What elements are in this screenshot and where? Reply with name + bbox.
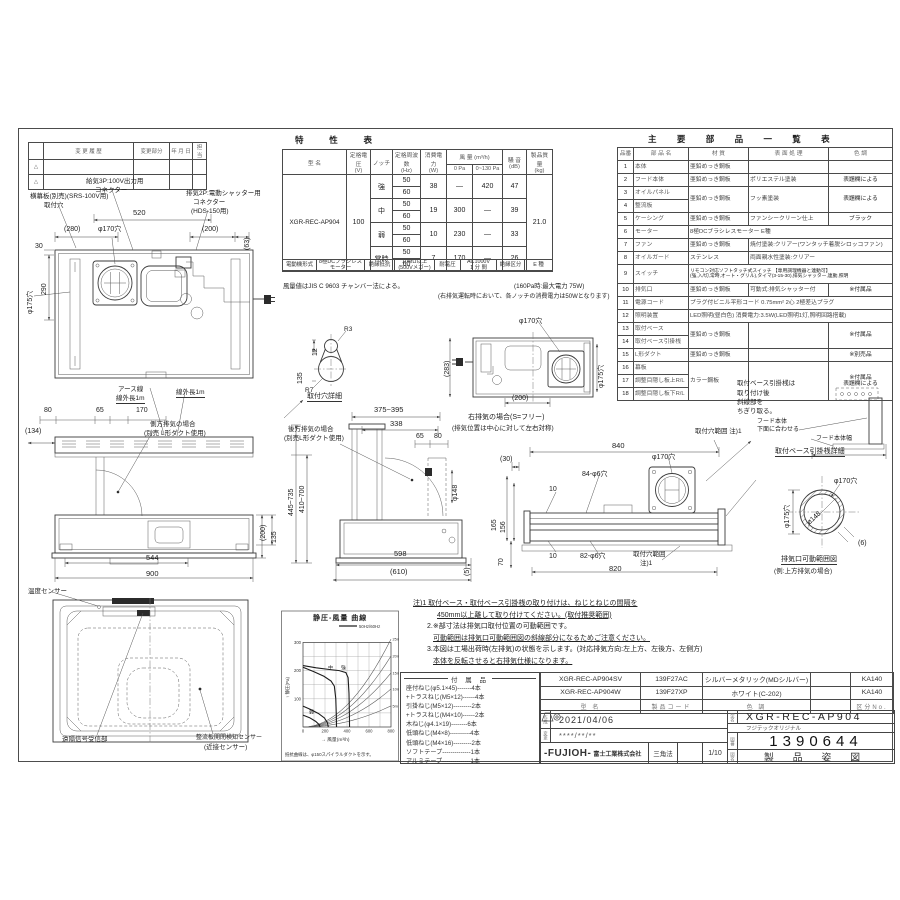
dim-label: 10: [549, 553, 557, 561]
svg-text:25m: 25m: [393, 637, 400, 642]
accessory-item: ソフトテープ--------------1本: [401, 748, 539, 757]
svg-text:300: 300: [294, 640, 302, 645]
accessory-item: 低頭ねじ(M4×16)---------2本: [401, 739, 539, 748]
table-cell: [749, 349, 829, 362]
accessory-item: 引掛ねじ(M5×12)---------2本: [401, 702, 539, 711]
dim-label: 取付ベース引掛桟は: [737, 380, 795, 387]
dim-label: 840: [612, 442, 625, 450]
table-cell: 調整目隠し板下R/L: [634, 388, 689, 401]
table-cell: リモコン対応ソフトタッチ式スイッチ 【専用調理機器と連動可】 (強,入/切,常時…: [689, 265, 893, 284]
table-cell: オイルパネル: [634, 187, 689, 200]
dim-label: アース線: [118, 386, 143, 393]
accessory-item: 木ねじ(φ4.1×19)--------6本: [401, 720, 539, 729]
table-cell: 取付ベース: [634, 323, 689, 336]
table-cell: モーター: [634, 226, 689, 239]
dim-label: (160Pa時:最大電力 75W): [514, 283, 584, 290]
third-angle-projection-icon: [677, 743, 702, 763]
table-cell: 15: [618, 349, 634, 362]
dim-label: φ175穴: [27, 291, 35, 314]
table-cell: [29, 143, 44, 160]
keyhole-detail-drawing: [284, 331, 348, 418]
table-cell: 本体: [634, 161, 689, 174]
dim-label: (200): [260, 525, 268, 541]
dim-label: 135: [271, 531, 279, 543]
note-line: 3.本図は工場出荷時(左排気)の状態を示します。(対応排気方向:左上方、左後方、…: [427, 644, 702, 656]
dim-label: φ148: [452, 485, 460, 501]
table-cell: 4: [618, 200, 634, 213]
model-name: XGR-REC-AP904: [738, 711, 894, 723]
table-cell: 1: [618, 161, 634, 174]
table-cell: 強: [371, 175, 393, 199]
table-cell: △: [29, 160, 44, 175]
top-view-drawing: [34, 190, 275, 378]
sheet-name-label: 図名: [728, 750, 738, 763]
table-cell: 2: [618, 174, 634, 187]
table-cell: 定格周波数 (Hz): [393, 150, 421, 175]
chart-ylabel: ↑ 静圧(Pa): [284, 676, 291, 698]
table-cell: 39: [503, 199, 527, 223]
dim-label: 544: [146, 554, 159, 562]
table-cell: ホワイト(C-202): [703, 686, 811, 700]
table-cell: 絶縁抵抗: [365, 260, 395, 272]
table-cell: [811, 673, 851, 687]
table-cell: 10MΩ以上 (500Vメガー): [395, 260, 435, 272]
dim-label: 取付穴詳細: [307, 393, 342, 402]
table-cell: —: [447, 175, 473, 199]
dim-label: 線外長1m: [176, 389, 205, 398]
table-cell: [811, 686, 851, 700]
dim-label: 注)1: [640, 560, 652, 567]
table-cell: 取付ベース引掛桟: [634, 336, 689, 349]
table-cell: 300: [447, 199, 473, 223]
table-cell: XGR-REC-AP904: [283, 175, 347, 271]
chart-title: 静圧-風量 曲線: [313, 613, 367, 622]
table-cell: シルバーメタリック(MDシルバー): [703, 673, 811, 687]
table-cell: 表題欄による: [829, 187, 893, 213]
table-cell: ノッチ: [371, 150, 393, 175]
table-cell: 亜鉛めっき鋼板: [689, 323, 749, 349]
mounting-base-drawing: [507, 440, 756, 576]
table-cell: 製品質量 (kg): [527, 150, 553, 175]
dim-label: (別売 L形ダクト使用): [144, 430, 206, 437]
table-cell: 幕板: [634, 362, 689, 375]
table-cell: 38: [421, 175, 447, 199]
dim-label: (5): [464, 567, 472, 576]
table-cell: 表 面 処 理: [749, 148, 829, 161]
drawing-number: 1390644: [738, 733, 894, 749]
dim-label: 取付穴: [44, 202, 64, 209]
dim-label: (134): [25, 428, 41, 436]
temp-sensor-note: 温度センサー: [28, 588, 67, 595]
proximity-sensor-note: 整流板開閉検知センサー: [196, 735, 262, 742]
table-cell: 139F27AC: [641, 673, 703, 687]
table-cell: 11: [618, 297, 634, 310]
table-cell: 電動機形式: [283, 260, 317, 272]
table-cell: 騒 音 (dB): [503, 150, 527, 175]
table-cell: 17: [618, 375, 634, 388]
table-cell: 139F27XP: [641, 686, 703, 700]
table-cell: 16: [618, 362, 634, 375]
table-cell: 230: [447, 223, 473, 247]
dim-label: 165: [491, 519, 499, 531]
table-cell: 3: [618, 187, 634, 200]
table-cell: 耐電圧: [435, 260, 461, 272]
note-line: 注)1 取付ベース・取付ベース引掛桟の取り付けは、ねじとねじの間隔を: [413, 598, 637, 610]
dim-label: 12: [312, 348, 320, 356]
table-cell: 中: [371, 199, 393, 223]
dim-label: 900: [146, 570, 159, 578]
table-cell: 33: [503, 223, 527, 247]
dim-label: (例:上方排気の場合): [774, 568, 832, 575]
dim-label: (HDS-150用): [191, 208, 229, 215]
drawing-scale: 1/10: [702, 743, 727, 763]
table-cell: プラグ付ビニル平形コード 0.75mm² 2心 2極差込プラグ: [689, 297, 893, 310]
table-cell: 型 名: [283, 150, 347, 175]
table-cell: XGR-REC-AP904SV: [541, 673, 641, 687]
table-cell: [134, 160, 170, 175]
dim-label: R3: [344, 326, 352, 333]
table-cell: KA140: [851, 686, 894, 700]
accessories-box: 付 属 品 座付ねじ(φ5.1×45)-------4本+トラスねじ(M5×12…: [400, 672, 540, 764]
right-exhaust-top-view-drawing: [450, 320, 597, 407]
table-cell: 10: [421, 223, 447, 247]
dim-label: (別売L形ダクト使用): [284, 435, 344, 442]
table-cell: 10: [618, 284, 634, 297]
table-cell: 部 品 名: [634, 148, 689, 161]
pressure-airflow-chart: 静圧-風量 曲線50Hz/60Hz10020030002004006008005…: [281, 610, 399, 765]
notes-block: 注)1 取付ベース・取付ベース引掛桟の取り付けは、ねじとねじの間隔を450mm以…: [413, 598, 893, 668]
table-cell: スイッチ: [634, 265, 689, 284]
accessories-title: 付 属 品: [401, 673, 539, 684]
dim-label: 135: [297, 372, 305, 384]
table-cell: 亜鉛めっき鋼板: [689, 349, 749, 362]
created-date: 2021/04/06: [551, 711, 727, 728]
table-cell: △: [29, 175, 44, 190]
parts-table: 品番部 品 名材 質表 面 処 理色 調1本体亜鉛めっき鋼板2フード本体亜鉛めっ…: [617, 147, 893, 401]
table-cell: 50: [393, 247, 421, 259]
table-cell: 21.0: [527, 175, 553, 271]
dim-label: 後方排気の場合: [288, 426, 334, 433]
table-cell: 13: [618, 323, 634, 336]
table-cell: 亜鉛めっき鋼板: [689, 239, 749, 252]
dim-label: コネクター: [193, 199, 225, 206]
dim-label: (排気位置は中心に対して左右対称): [452, 425, 554, 432]
dim-label: φ175穴: [784, 505, 792, 528]
note-line: 450mm以上離して取り付けてください。(取付推奨範囲): [437, 610, 612, 622]
table-cell: AC1000V 1 分 間: [461, 260, 497, 272]
dim-label: 排気口可動範囲図: [781, 556, 837, 565]
table-cell: —: [473, 223, 503, 247]
dim-label: φ170穴: [519, 318, 542, 326]
dim-label: 30: [35, 243, 43, 251]
table-cell: [193, 175, 207, 190]
projection-method: 三角法: [648, 743, 677, 763]
spec-table-title: 特 性 表: [295, 134, 379, 146]
chart-note: 抵抗曲線は、φ150スパイラルダクトを示す。: [285, 751, 374, 758]
dim-label: (200): [512, 395, 528, 403]
table-cell: 可動式:排気シャッター付: [749, 284, 829, 297]
exhaust-range-diagram: [786, 476, 860, 548]
table-cell: 14: [618, 336, 634, 349]
svg-text:200: 200: [294, 668, 302, 673]
dim-label: 375~395: [374, 406, 403, 414]
svg-text:100: 100: [294, 696, 302, 701]
table-cell: —: [473, 199, 503, 223]
table-cell: [749, 323, 829, 349]
note-line: 本体を反転させると右排気仕様になります。: [433, 656, 572, 668]
table-cell: XGR-REC-AP904W: [541, 686, 641, 700]
dim-label: (283): [444, 361, 452, 377]
dim-label: 65: [96, 407, 104, 415]
drawing-number-label: 図番: [728, 733, 738, 749]
dim-label: 下面に合わせる: [757, 427, 799, 434]
dim-label: (6): [858, 540, 867, 548]
chart-xlabel: → 風量(m³/h): [321, 736, 350, 743]
table-cell: 60: [393, 187, 421, 199]
table-cell: 18: [618, 388, 634, 401]
table-cell: 6: [618, 226, 634, 239]
dim-label: 70: [498, 558, 506, 566]
table-cell: [829, 161, 893, 174]
spec-table: 型 名定格電圧 (V)ノッチ定格周波数 (Hz)消費電力 (W)風 量 (m³/…: [282, 149, 553, 271]
dim-label: 80: [44, 407, 52, 415]
table-cell: 亜鉛めっき鋼板: [689, 284, 749, 297]
table-cell: 5: [618, 213, 634, 226]
table-cell: 0~130 Pa: [473, 164, 503, 174]
dim-label: (63): [244, 238, 252, 250]
table-cell: 亜鉛めっき鋼板: [689, 161, 749, 174]
table-cell: 50: [393, 199, 421, 211]
table-cell: ファン: [634, 239, 689, 252]
table-cell: ※付属品: [829, 284, 893, 297]
table-cell: 7: [618, 239, 634, 252]
dim-label: 445~735: [288, 489, 296, 516]
accessory-item: 座付ねじ(φ5.1×45)-------4本: [401, 684, 539, 693]
table-cell: 色 調: [829, 148, 893, 161]
table-cell: ※付属品: [829, 323, 893, 349]
table-cell: 両面親水性塗装:クリアー: [749, 252, 893, 265]
svg-text:600: 600: [366, 729, 374, 734]
chart-legend: 50Hz/60Hz: [359, 624, 380, 629]
dim-label: (30): [500, 456, 512, 464]
table-cell: ポリエステル塗装: [749, 174, 829, 187]
table-cell: 亜鉛めっき鋼板: [689, 187, 749, 213]
exhaust-connector-note: 排気2P:電動シャッター用: [186, 190, 261, 197]
accessory-item: アルミテープ--------------1本: [401, 757, 539, 766]
svg-text:0: 0: [302, 729, 305, 734]
motor-spec-table: 電動機形式8極DCブラシレス モーター絶縁抵抗10MΩ以上 (500Vメガー)耐…: [282, 259, 553, 272]
dim-label: 取付穴範囲: [633, 551, 666, 558]
table-cell: 弱: [371, 223, 393, 247]
dim-label: 右排気の場合(S=フリー): [468, 414, 544, 422]
dim-label: 156: [500, 521, 508, 533]
svg-text:800: 800: [388, 729, 396, 734]
dim-label: (200): [202, 226, 218, 234]
note-line: 可動範囲は排気口可動範囲図の斜線部分になるためご注意ください。: [433, 633, 650, 645]
table-cell: 風 量 (m³/h): [447, 150, 503, 165]
dim-label: (610): [390, 568, 408, 576]
dim-label: 65: [416, 433, 424, 441]
table-cell: L形ダクト: [634, 349, 689, 362]
table-cell: 60: [393, 235, 421, 247]
table-cell: 60: [393, 211, 421, 223]
svg-text:200: 200: [322, 729, 330, 734]
table-cell: 焼付塗装:クリアー(ワンタッチ着脱シロッコファン): [749, 239, 893, 252]
table-cell: 亜鉛めっき鋼板: [689, 174, 749, 187]
accessories-list: 座付ねじ(φ5.1×45)-------4本+トラスねじ(M5×12)-----…: [401, 684, 539, 766]
title-block-left: 作成 2021/04/06 変更 ****/**/** -FUJIOH- 富士工…: [541, 711, 728, 763]
table-cell: LED照明(昼白色) 消費電力:3.5W(LED照明1灯,照明回路搭載): [689, 310, 893, 323]
parts-table-title: 主 要 部 品 一 覧 表: [648, 133, 839, 145]
table-cell: 表題欄による: [829, 174, 893, 187]
svg-text:強: 強: [341, 664, 346, 671]
table-cell: KA140: [851, 673, 894, 687]
dim-label: 820: [609, 565, 622, 573]
table-cell: 50: [393, 223, 421, 235]
model-label: 型名: [728, 711, 738, 723]
bottom-view-drawing: [52, 592, 248, 744]
company-name: 富士工業株式会社: [593, 749, 641, 758]
table-cell: オイルガード: [634, 252, 689, 265]
accessory-item: 低頭ねじ(M4×8)----------4本: [401, 729, 539, 738]
title-block-right: 型名 XGR-REC-AP904 フジテックオリジナル 図番 1390644 図…: [728, 711, 894, 763]
accessories-title-text: 付 属 品: [451, 674, 489, 684]
table-cell: 47: [503, 175, 527, 199]
table-cell: 排気口: [634, 284, 689, 297]
table-cell: フッ素塗装: [749, 187, 829, 213]
dim-label: 80: [434, 433, 442, 441]
changed-date: ****/**/**: [551, 729, 727, 742]
table-cell: 材 質: [689, 148, 749, 161]
table-cell: 定格電圧 (V): [347, 150, 371, 175]
table-cell: 420: [473, 175, 503, 199]
table-cell: ステンレス: [689, 252, 749, 265]
dim-label: (右排気運転時において、各ノッチの消費電力は50Wとなります): [438, 294, 610, 301]
table-cell: 亜鉛めっき鋼板: [689, 213, 749, 226]
dim-label: (280): [64, 226, 80, 234]
dim-label: φ170穴: [98, 226, 121, 234]
table-cell: 年 月 日: [170, 143, 193, 160]
table-cell: 100: [347, 175, 371, 271]
dim-label: 338: [390, 420, 403, 428]
series-name: フジテックオリジナル: [738, 724, 894, 732]
table-cell: E 種: [525, 260, 553, 272]
table-cell: ファンシークリーン仕上: [749, 213, 829, 226]
table-cell: 調整目隠し板上R/L: [634, 375, 689, 388]
dim-label: φ170穴: [652, 454, 675, 462]
dim-label: 斜線部を: [737, 399, 763, 406]
table-cell: 0 Pa: [447, 164, 473, 174]
drawing-sheet: 変 更 履 歴変更部分年 月 日担 当△△ 特 性 表 型 名定格電圧 (V)ノ…: [0, 0, 900, 900]
table-cell: [749, 161, 829, 174]
table-cell: 電源コード: [634, 297, 689, 310]
dim-label: ちぎり取る。: [737, 408, 776, 415]
table-cell: [44, 160, 134, 175]
table-cell: ケーシング: [634, 213, 689, 226]
dim-label: 取付穴範囲 注)1: [695, 428, 742, 435]
table-cell: ブラック: [829, 213, 893, 226]
dim-label: 520: [133, 209, 146, 217]
dim-label: 線外長1m: [116, 395, 145, 404]
changed-label: 変更: [541, 729, 551, 742]
dim-label: φ175穴: [598, 365, 606, 388]
accessory-item: +トラスねじ(M5×12)------4本: [401, 693, 539, 702]
svg-text:20m: 20m: [393, 653, 400, 658]
svg-text:400: 400: [344, 729, 352, 734]
fujioh-logo: -FUJIOH-: [544, 748, 591, 759]
dim-label: 410~700: [299, 486, 307, 513]
table-cell: 8極DCブラシレスモーター E種: [689, 226, 893, 239]
table-cell: 絶縁区分: [497, 260, 525, 272]
variant-table: XGR-REC-AP904SV139F27ACシルバーメタリック(MDシルバー)…: [540, 672, 894, 714]
table-cell: 品番: [618, 148, 634, 161]
table-cell: 照明装置: [634, 310, 689, 323]
table-cell: ※別売品: [829, 349, 893, 362]
dim-label: 風量値はJIS C 9603 チャンバー法による。: [283, 283, 404, 290]
table-cell: 担 当: [193, 143, 207, 160]
remote-receiver-note: 遠隔信号受信部: [62, 736, 108, 743]
svg-text:弱: 弱: [309, 709, 314, 715]
note-line: 2.※部寸法は排気口取付位置の可動範囲です。: [427, 621, 571, 633]
table-cell: [170, 175, 193, 190]
dim-label: フード本体: [757, 419, 787, 426]
title-block: XGR-REC-AP904SV139F27ACシルバーメタリック(MDシルバー)…: [540, 672, 893, 762]
table-cell: 8極DCブラシレス モーター: [317, 260, 365, 272]
table-cell: 50: [393, 175, 421, 187]
table-cell: [193, 160, 207, 175]
supply-connector-note: 給気3P:100V出力用: [86, 178, 143, 185]
svg-text:中: 中: [328, 664, 333, 671]
dim-label: 598: [394, 550, 407, 558]
svg-text:15m: 15m: [393, 670, 400, 675]
table-cell: 12: [618, 310, 634, 323]
svg-text:5m: 5m: [393, 703, 398, 708]
dim-label: 取付ベース引掛桟詳細: [775, 448, 845, 457]
dim-label: 10: [549, 486, 557, 494]
svg-text:10m: 10m: [393, 686, 400, 691]
table-cell: 整流板: [634, 200, 689, 213]
dim-label: 取り付け後: [737, 390, 770, 397]
accessory-item: +トラスねじ(M4×10)------2本: [401, 711, 539, 720]
table-cell: 変 更 履 歴: [44, 143, 134, 160]
dim-label: 84-φ6穴: [582, 471, 608, 479]
dim-label: フード本体幅: [816, 436, 852, 443]
dim-label: (近接センサー): [204, 744, 247, 751]
table-cell: 19: [421, 199, 447, 223]
side-panel-note: 横幕板(別売)(SRS-100V用): [30, 193, 108, 200]
table-cell: [170, 160, 193, 175]
table-cell: 8: [618, 252, 634, 265]
dim-label: 82-φ6穴: [580, 553, 606, 561]
table-cell: ※付属品 表題欄による: [829, 362, 893, 401]
table-cell: 9: [618, 265, 634, 284]
table-cell: フード本体: [634, 174, 689, 187]
sheet-name: 製 品 姿 図: [738, 750, 894, 763]
dim-label: 側方排気の場合: [150, 421, 196, 428]
dim-label: φ170穴: [834, 478, 857, 486]
dim-label: 170: [136, 407, 148, 415]
title-block-lower: 作成 2021/04/06 変更 ****/**/** -FUJIOH- 富士工…: [540, 710, 895, 764]
table-cell: 消費電力 (W): [421, 150, 447, 175]
table-cell: 変更部分: [134, 143, 170, 160]
dim-label: 290: [41, 283, 49, 295]
